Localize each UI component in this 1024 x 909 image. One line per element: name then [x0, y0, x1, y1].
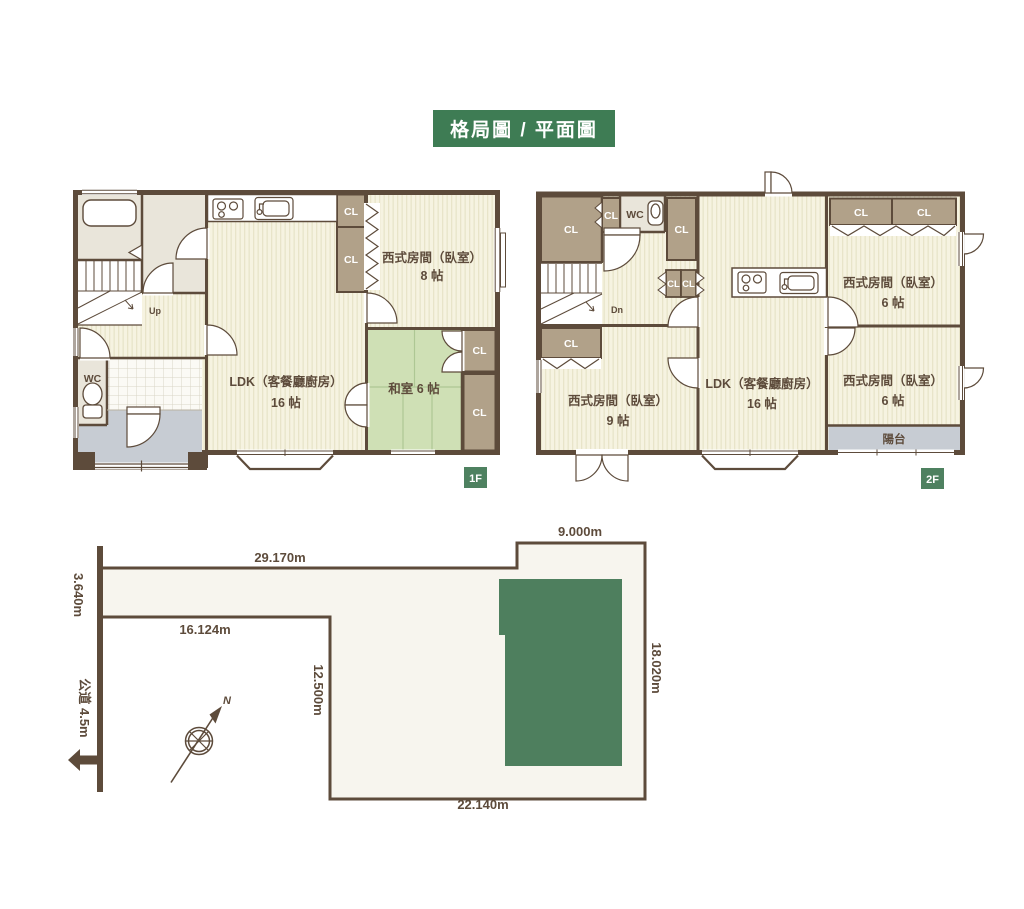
room-western6bottom-size: 6 帖: [882, 393, 905, 408]
floorplan-page: 格局圖 / 平面圖: [0, 0, 1024, 909]
wc-label-2f: WC: [626, 209, 644, 221]
dim-left: 3.640m: [71, 573, 86, 617]
dim-right: 18.020m: [649, 642, 664, 693]
closet-label: CL: [854, 207, 869, 219]
room-western6top-size: 6 帖: [882, 295, 905, 310]
closet-label: CL: [682, 279, 695, 290]
dim-top: 29.170m: [254, 550, 305, 565]
closet-label: CL: [675, 224, 690, 236]
room-washitsu-label: 和室 6 帖: [387, 381, 440, 396]
room-ldk-size-2f: 16 帖: [747, 396, 777, 411]
closet-label: CL: [564, 338, 579, 350]
closet-label: CL: [604, 210, 619, 222]
building-footprint: [499, 579, 622, 766]
wc-label-1f: WC: [84, 373, 102, 385]
closet-label: CL: [473, 407, 488, 419]
kitchen-2f: [732, 268, 827, 297]
door-arc-icon: [576, 455, 602, 481]
balcony-railing-icon: [838, 450, 954, 456]
tile-hall-1f: [107, 359, 202, 410]
road-label: 公道 4.5m: [77, 678, 92, 737]
closet-label: CL: [344, 254, 359, 266]
room-western9-size: 9 帖: [607, 413, 630, 428]
compass-icon: [171, 706, 222, 783]
room-western8-name: 西式房間（臥室）: [382, 250, 482, 265]
site-plan: 29.170m 9.000m 16.124m 22.140m 3.640m 12…: [58, 520, 698, 860]
window-icon: [82, 189, 137, 195]
dim-inner-h: 16.124m: [179, 622, 230, 637]
closet-label: CL: [564, 224, 579, 236]
room-ldk-name-1f: LDK（客餐廳廚房）: [229, 374, 342, 389]
door-arc-icon: [964, 234, 984, 254]
window-icon: [74, 328, 80, 356]
window-icon: [702, 450, 798, 457]
badge-text-2f: 2F: [926, 474, 939, 486]
stairs-up-label: Up: [149, 306, 161, 316]
room-western6bottom-name: 西式房間（臥室）: [843, 373, 943, 388]
room-western8-size: 8 帖: [421, 268, 444, 283]
door-arc-icon: [964, 368, 984, 388]
room-ldk-name-2f: LDK（客餐廳廚房）: [705, 376, 818, 391]
floor-badge-1f: 1F: [464, 467, 487, 488]
window-icon: [74, 407, 80, 438]
page-title-text: 格局圖 / 平面圖: [450, 115, 598, 142]
balcony-label: 陽台: [883, 432, 906, 446]
window-icon: [237, 450, 333, 457]
dim-inner-v: 12.500m: [311, 664, 326, 715]
porch-step-2f: [702, 456, 798, 470]
page-title: 格局圖 / 平面圖: [433, 110, 615, 147]
closet-label: CL: [667, 279, 680, 290]
closet-label: CL: [344, 206, 359, 218]
toilet-icon-1f: [83, 383, 102, 418]
road-arrow-icon: [68, 749, 100, 771]
window-icon: [537, 360, 543, 393]
dim-bottom: 22.140m: [457, 797, 508, 812]
window-icon: [391, 450, 435, 457]
toilet-icon-2f: [648, 201, 663, 225]
door-arc-icon: [771, 172, 792, 193]
room-western6top-name: 西式房間（臥室）: [843, 275, 943, 290]
north-label: N: [223, 695, 232, 707]
kitchen-1f: [208, 195, 338, 222]
closet-label: CL: [917, 207, 932, 219]
porch-step-1f: [237, 456, 333, 470]
floorplan-2f: 2F CL CL WC CL CL CL CL CL CL Dn LDK（客餐廳…: [536, 166, 996, 498]
floorplan-1f: 1F Up WC CL CL CL CL 西式房間（臥室） 8 帖 LDK（客餐…: [73, 188, 509, 500]
badge-text-1f: 1F: [469, 473, 482, 485]
closet-label: CL: [473, 345, 488, 357]
room-ldk-size-1f: 16 帖: [271, 395, 301, 410]
stairs-dn-label: Dn: [611, 305, 623, 315]
floor-badge-2f: 2F: [921, 468, 944, 489]
door-arc-icon: [602, 455, 628, 481]
bathtub-icon: [83, 200, 136, 226]
window-icon: [958, 232, 965, 266]
dim-top-right: 9.000m: [558, 524, 602, 539]
window-icon: [958, 366, 965, 400]
window-icon: [494, 228, 506, 292]
room-western9-name: 西式房間（臥室）: [568, 393, 668, 408]
